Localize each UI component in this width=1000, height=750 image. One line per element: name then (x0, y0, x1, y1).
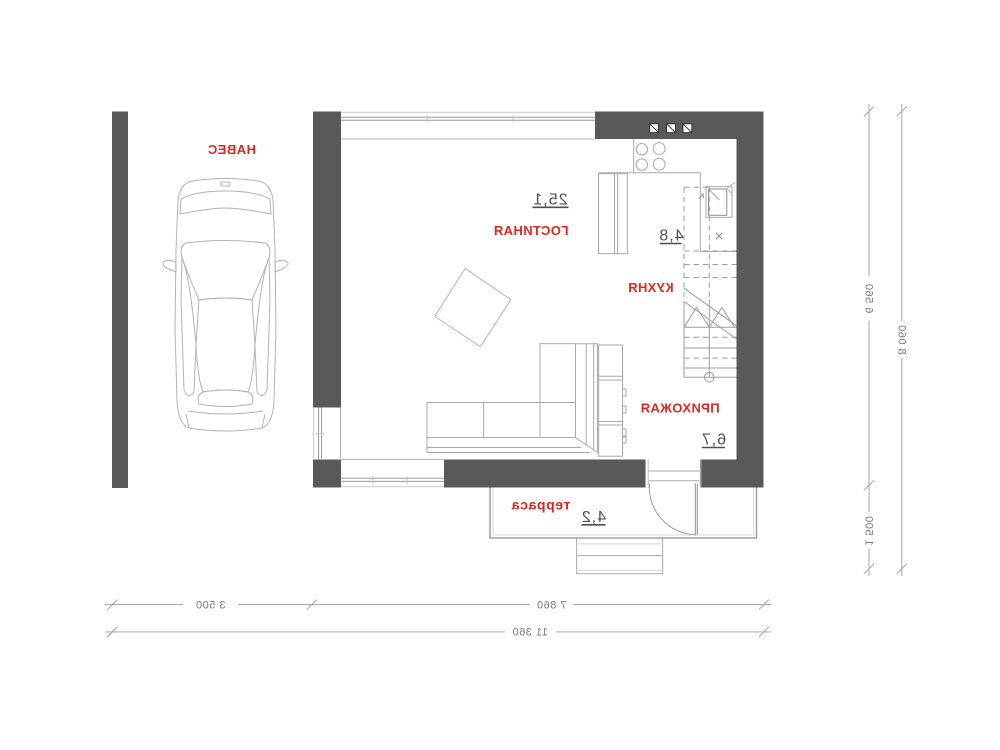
svg-text:терраса: терраса (511, 497, 570, 513)
svg-text:ГОСТИНАЯ: ГОСТИНАЯ (494, 223, 569, 238)
svg-text:4,2: 4,2 (581, 509, 606, 526)
svg-text:4,8: 4,8 (658, 228, 683, 245)
svg-text:НАВЕС: НАВЕС (207, 142, 256, 157)
svg-text:7 860: 7 860 (536, 599, 566, 611)
svg-text:ПРИХОЖАЯ: ПРИХОЖАЯ (640, 401, 719, 416)
svg-text:6,7: 6,7 (701, 432, 726, 449)
svg-text:3 500: 3 500 (195, 599, 225, 611)
svg-text:8 060: 8 060 (895, 325, 907, 355)
svg-text:11 360: 11 360 (512, 627, 548, 639)
svg-text:1 500: 1 500 (863, 516, 875, 546)
svg-text:КУХНЯ: КУХНЯ (628, 280, 674, 295)
svg-text:6 560: 6 560 (863, 283, 875, 313)
svg-text:25,1: 25,1 (532, 192, 567, 209)
